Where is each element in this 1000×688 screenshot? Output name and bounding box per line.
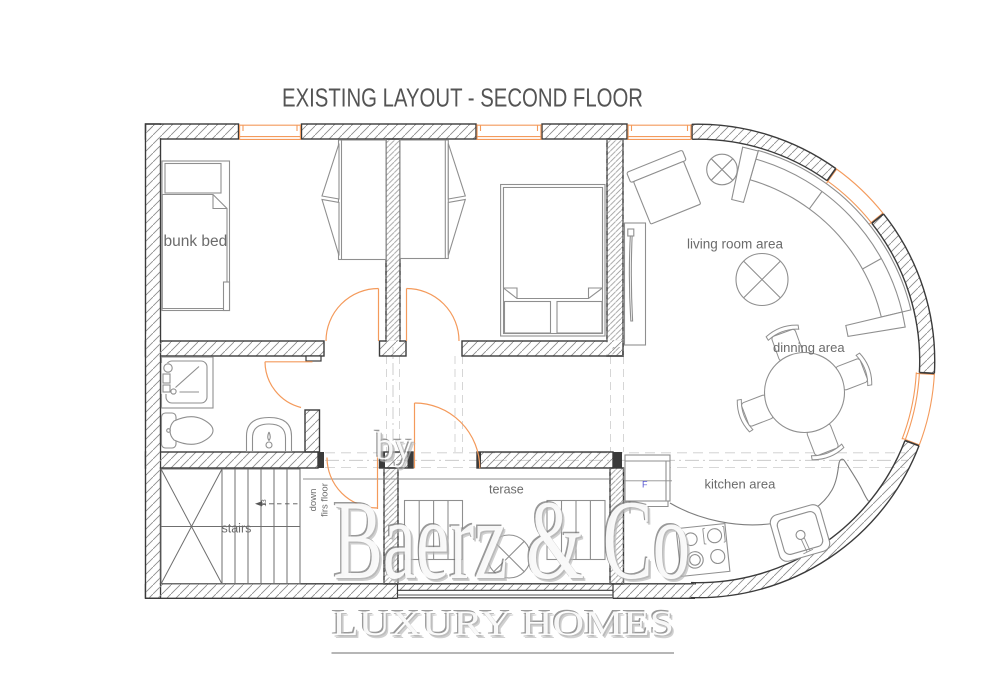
svg-text:bunk bed: bunk bed bbox=[164, 233, 228, 250]
svg-text:stairs: stairs bbox=[222, 522, 252, 536]
svg-text:by: by bbox=[375, 423, 413, 468]
svg-text:13: 13 bbox=[261, 499, 268, 507]
svg-text:living room area: living room area bbox=[687, 237, 784, 252]
svg-text:Baerz & Co: Baerz & Co bbox=[333, 478, 690, 603]
svg-text:LUXURY HOMES: LUXURY HOMES bbox=[332, 603, 674, 643]
svg-text:kitchen area: kitchen area bbox=[705, 477, 777, 492]
svg-text:dinning area: dinning area bbox=[773, 340, 845, 355]
svg-text:EXISTING LAYOUT - SECOND FLOOR: EXISTING LAYOUT - SECOND FLOOR bbox=[282, 83, 643, 113]
svg-text:down: down bbox=[308, 489, 319, 512]
svg-text:firs floor: firs floor bbox=[320, 483, 331, 517]
